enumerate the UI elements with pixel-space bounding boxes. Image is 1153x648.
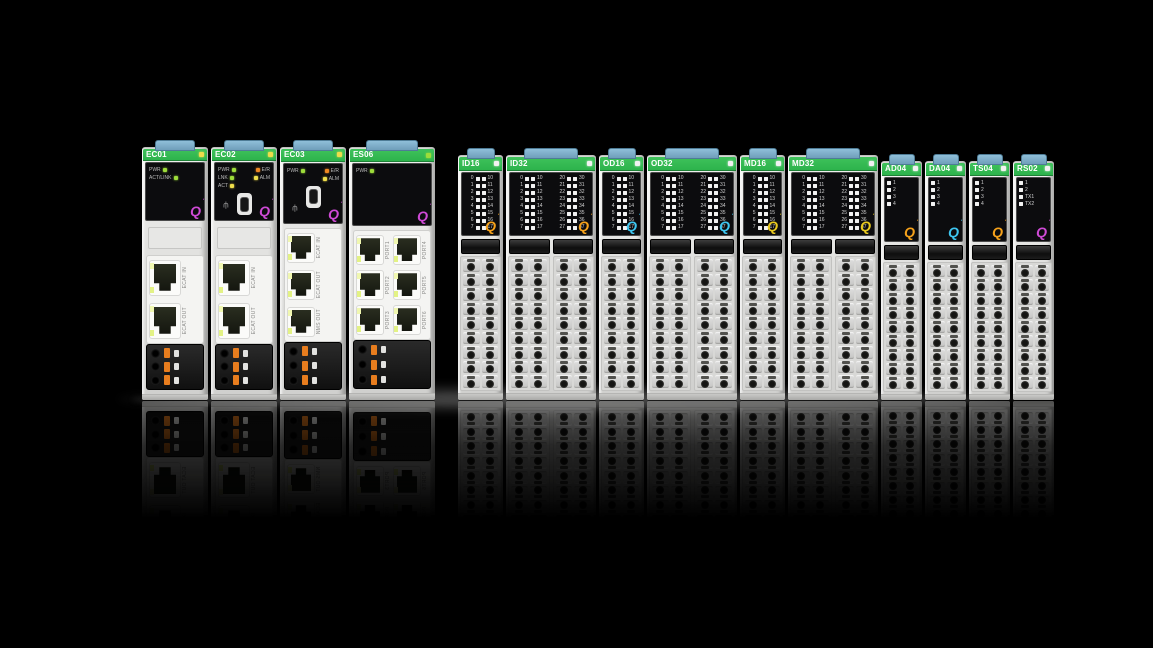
- terminal-wire-hole: [486, 428, 494, 436]
- terminal-section: [790, 410, 876, 545]
- channel-number: 1: [798, 183, 805, 188]
- channel-led: [887, 188, 891, 192]
- power-connector-row: [151, 429, 199, 440]
- status-led: [869, 161, 874, 166]
- terminal-release-slot: [675, 422, 683, 425]
- push-in-terminal: [991, 307, 1006, 319]
- push-in-terminal: [886, 496, 901, 508]
- terminal-release-slot: [467, 259, 475, 262]
- terminal-wire-hole: [467, 380, 475, 388]
- power-test-point: [174, 377, 179, 384]
- terminal-wire-hole: [994, 367, 1002, 375]
- module-base: [925, 394, 966, 400]
- power-release-lever: [164, 348, 170, 358]
- terminal-release-slot: [627, 303, 635, 306]
- terminal-release-slot: [515, 332, 523, 335]
- terminal-section: [883, 262, 920, 392]
- push-in-terminal: [482, 259, 499, 272]
- link-led: [288, 310, 292, 316]
- push-in-terminal: [856, 471, 873, 484]
- terminal-release-slot: [486, 437, 494, 440]
- terminal-wire-hole: [933, 440, 941, 448]
- channel-row: 2333: [836, 196, 872, 203]
- ejector-latch-row: [791, 239, 875, 254]
- terminal-wire-hole: [816, 336, 824, 344]
- module-ec01: EC01PWRACT/LINKQʹʹECAT INECAT OUT: [142, 147, 208, 400]
- terminal-wire-hole: [579, 457, 587, 465]
- terminal-release-slot: [933, 307, 941, 310]
- ethernet-port-row: ECAT IN: [218, 260, 270, 296]
- terminal-release-slot: [906, 293, 914, 296]
- terminal-wire-hole: [608, 292, 616, 300]
- rj45-jack: [291, 273, 311, 296]
- channel-number: 2: [798, 190, 805, 195]
- channel-number: 34: [579, 204, 586, 209]
- push-in-terminal: [671, 471, 688, 484]
- link-led: [150, 263, 154, 269]
- terminal-release-slot: [608, 422, 616, 425]
- terminal-wire-hole: [768, 307, 776, 315]
- terminal-release-slot: [579, 303, 587, 306]
- channel-led: [567, 184, 571, 188]
- push-in-terminal: [974, 468, 989, 480]
- channel-led: [623, 205, 627, 209]
- port-label: PORT6: [423, 311, 428, 329]
- push-in-terminal: [604, 471, 621, 484]
- channel-led-panel: 010111212313414515616717Qʹʹ: [743, 172, 782, 236]
- terminal-wire-hole: [1038, 468, 1046, 476]
- terminal-release-slot: [768, 451, 776, 454]
- channel-row: 515: [794, 210, 830, 217]
- port-label: ECAT OUT: [317, 503, 322, 530]
- terminal-wire-hole: [861, 263, 869, 271]
- channel-row: 111: [512, 182, 548, 189]
- channel-number: 30: [720, 176, 727, 181]
- push-in-terminal: [1018, 335, 1033, 347]
- channel-led: [758, 191, 762, 195]
- ethernet-port-row: ECAT OUT: [287, 270, 339, 300]
- terminal-release-slot: [579, 481, 587, 484]
- terminal-release-slot: [675, 451, 683, 454]
- channel-row: 2131: [554, 182, 590, 189]
- terminal-wire-hole: [608, 351, 616, 359]
- rj45-jack: [397, 308, 417, 331]
- channel-row: 313: [605, 196, 638, 203]
- channel-number: 7: [516, 225, 523, 230]
- led-label: ACT: [218, 182, 228, 190]
- terminal-wire-hole: [515, 336, 523, 344]
- push-in-terminal: [764, 274, 781, 287]
- terminal-wire-hole: [579, 428, 587, 436]
- terminal-wire-hole: [768, 278, 776, 286]
- terminal-release-slot: [486, 274, 494, 277]
- port-label: NMS OUT: [317, 309, 322, 334]
- terminal-wire-hole: [675, 321, 683, 329]
- push-in-terminal: [623, 428, 640, 441]
- ejector-latch: [650, 239, 691, 254]
- terminal-release-slot: [889, 533, 897, 536]
- terminal-wire-hole: [627, 428, 635, 436]
- link-led: [150, 489, 154, 495]
- status-led: [163, 168, 167, 172]
- ethernet-port-row: PORT1: [356, 536, 391, 551]
- terminal-release-slot: [579, 466, 587, 469]
- terminal-release-slot: [842, 451, 850, 454]
- terminal-wire-hole: [608, 278, 616, 286]
- ethernet-port-group: ECAT INECAT OUT: [146, 255, 204, 344]
- push-in-terminal: [623, 442, 640, 455]
- push-in-terminal: [886, 377, 901, 389]
- terminal-release-slot: [994, 377, 1002, 380]
- terminal-wire-hole: [579, 530, 587, 538]
- push-in-terminal: [623, 317, 640, 330]
- terminal-release-slot: [768, 303, 776, 306]
- terminal-wire-hole: [906, 325, 914, 333]
- terminal-wire-hole: [534, 380, 542, 388]
- activity-led: [150, 508, 154, 514]
- push-in-terminal: [463, 529, 480, 542]
- terminal-wire-hole: [627, 442, 635, 450]
- ethernet-port-row: PORT2: [356, 270, 391, 300]
- channel-led: [525, 177, 529, 181]
- terminal-wire-hole: [486, 501, 494, 509]
- rj45-port: [356, 305, 384, 335]
- push-in-terminal: [1018, 426, 1033, 438]
- channel-number: 0: [798, 176, 805, 181]
- power-release-lever: [302, 430, 308, 440]
- link-led: [394, 522, 398, 528]
- channel-row: 111: [464, 182, 497, 189]
- terminal-release-slot: [1021, 491, 1029, 494]
- ejector-latch: [835, 547, 876, 551]
- channel-led: [573, 191, 577, 195]
- module-base: [969, 401, 1010, 407]
- push-in-terminal: [482, 486, 499, 499]
- push-in-terminal: [991, 524, 1006, 536]
- terminal-release-slot: [933, 321, 941, 324]
- ejector-latch: [928, 245, 963, 260]
- channel-number: 6: [798, 218, 805, 223]
- terminal-release-slot: [1038, 477, 1046, 480]
- terminal-release-slot: [486, 539, 494, 542]
- push-in-terminal: [556, 288, 573, 301]
- terminal-wire-hole: [906, 496, 914, 504]
- terminal-release-slot: [906, 421, 914, 424]
- push-in-terminal: [604, 288, 621, 301]
- terminal-release-slot: [515, 466, 523, 469]
- status-led: [232, 168, 236, 172]
- push-in-terminal: [991, 335, 1006, 347]
- push-in-terminal: [463, 361, 480, 374]
- rj45-jack: [291, 505, 311, 528]
- push-in-terminal: [511, 274, 528, 287]
- channel-led-group: 010111212313414515616717: [512, 175, 548, 235]
- push-in-terminal: [604, 457, 621, 470]
- terminal-wire-hole: [797, 457, 805, 465]
- terminal-wire-hole: [467, 515, 475, 523]
- push-in-terminal: [697, 442, 714, 455]
- channel-row: 616: [512, 217, 548, 224]
- channel-led: [666, 177, 670, 181]
- power-wire-hole: [151, 416, 160, 425]
- terminal-wire-hole: [950, 339, 958, 347]
- channel-row: 2434: [695, 203, 731, 210]
- channel-led: [531, 191, 535, 195]
- terminal-release-slot: [861, 376, 869, 379]
- push-in-terminal: [1035, 321, 1050, 333]
- terminal-wire-hole: [861, 442, 869, 450]
- push-in-terminal: [793, 413, 810, 426]
- terminal-wire-hole: [515, 292, 523, 300]
- push-in-terminal: [1035, 377, 1050, 389]
- terminal-wire-hole: [977, 412, 985, 420]
- terminal-wire-hole: [467, 457, 475, 465]
- rj45-jack: [223, 307, 245, 334]
- push-in-terminal: [838, 361, 855, 374]
- terminal-wire-hole: [950, 381, 958, 389]
- module-base: [881, 394, 922, 400]
- terminal-release-slot: [486, 303, 494, 306]
- channel-row: 010: [464, 175, 497, 182]
- terminal-release-slot: [950, 519, 958, 522]
- terminal-block: [1015, 409, 1052, 539]
- push-in-terminal: [530, 375, 547, 388]
- terminal-release-slot: [534, 303, 542, 306]
- push-in-terminal: [764, 361, 781, 374]
- channel-label: 1: [1025, 181, 1028, 186]
- channel-row: 111: [746, 182, 779, 189]
- q-logo: Q: [417, 210, 428, 222]
- terminal-release-slot: [579, 274, 587, 277]
- terminal-release-slot: [889, 307, 897, 310]
- push-in-terminal: [652, 274, 669, 287]
- terminal-release-slot: [720, 376, 728, 379]
- terminal-wire-hole: [977, 297, 985, 305]
- push-in-terminal: [556, 361, 573, 374]
- terminal-wire-hole: [656, 413, 664, 421]
- channel-number: 34: [861, 204, 868, 209]
- terminal-wire-hole: [675, 307, 683, 315]
- terminal-block: [927, 409, 964, 539]
- terminal-wire-hole: [579, 442, 587, 450]
- terminal-wire-hole: [675, 457, 683, 465]
- push-in-terminal: [511, 486, 528, 499]
- module-da04: DA041234Qʹʹ: [925, 401, 966, 551]
- terminal-release-slot: [977, 321, 985, 324]
- push-in-terminal: [652, 515, 669, 528]
- channel-led: [617, 205, 621, 209]
- channel-led: [758, 226, 762, 230]
- led-with-label: LNK: [218, 174, 234, 182]
- push-in-terminal: [530, 428, 547, 441]
- terminal-wire-hole: [1021, 454, 1029, 462]
- rj45-port: [287, 464, 315, 494]
- channel-row: 414: [746, 203, 779, 210]
- channel-number: 2: [608, 190, 615, 195]
- push-in-terminal: [530, 259, 547, 272]
- channel-led: [764, 177, 768, 181]
- terminal-wire-hole: [933, 412, 941, 420]
- terminal-wire-hole: [656, 278, 664, 286]
- push-in-terminal: [903, 468, 918, 480]
- terminal-wire-hole: [797, 321, 805, 329]
- push-in-terminal: [974, 412, 989, 424]
- terminal-wire-hole: [816, 457, 824, 465]
- terminal-wire-hole: [994, 524, 1002, 532]
- module-id16: ID16010111212313414515616717Qʹʹ: [458, 401, 503, 551]
- power-test-point: [174, 350, 179, 357]
- terminal-wire-hole: [797, 472, 805, 480]
- module-od32: OD32010111212313414515616717203021312232…: [647, 401, 737, 551]
- link-led: [288, 236, 292, 242]
- terminal-release-slot: [627, 524, 635, 527]
- push-in-terminal: [511, 457, 528, 470]
- channel-led: [758, 205, 762, 209]
- push-in-terminal: [764, 259, 781, 272]
- terminal-wire-hole: [656, 428, 664, 436]
- push-in-terminal: [793, 346, 810, 359]
- terminal-wire-hole: [889, 482, 897, 490]
- terminal-release-slot: [534, 422, 542, 425]
- terminal-wire-hole: [486, 263, 494, 271]
- channel-number: 1: [657, 183, 664, 188]
- push-in-terminal: [745, 288, 762, 301]
- channel-number: 7: [608, 225, 615, 230]
- push-in-terminal: [671, 486, 688, 499]
- ejector-latch: [602, 239, 641, 254]
- terminal-release-slot: [515, 422, 523, 425]
- channel-label: 3: [981, 195, 984, 200]
- channel-number: 34: [720, 204, 727, 209]
- channel-led: [714, 177, 718, 181]
- push-in-terminal: [623, 515, 640, 528]
- terminal-wire-hole: [749, 457, 757, 465]
- terminal-wire-hole: [906, 482, 914, 490]
- terminal-wire-hole: [656, 307, 664, 315]
- power-connector-row: [289, 346, 337, 357]
- push-in-terminal: [903, 426, 918, 438]
- terminal-wire-hole: [1021, 297, 1029, 305]
- channel-led: [476, 212, 480, 216]
- module-ts04: TS041234Qʹʹ: [969, 161, 1010, 400]
- module-label-strip: OD16: [600, 157, 643, 171]
- terminal-release-slot: [627, 332, 635, 335]
- channel-row: 010: [512, 175, 548, 182]
- push-in-terminal: [463, 346, 480, 359]
- push-in-terminal: [856, 317, 873, 330]
- terminal-release-slot: [797, 288, 805, 291]
- channel-row: 2232: [695, 189, 731, 196]
- channel-row: 414: [605, 203, 638, 210]
- push-in-terminal: [856, 346, 873, 359]
- channel-led: [476, 226, 480, 230]
- terminal-wire-hole: [675, 515, 683, 523]
- terminal-release-slot: [560, 303, 568, 306]
- terminal-wire-hole: [627, 263, 635, 271]
- channel-number: 15: [537, 211, 544, 216]
- terminal-release-slot: [701, 437, 709, 440]
- push-in-terminal: [715, 375, 732, 388]
- push-in-terminal: [511, 529, 528, 542]
- terminal-wire-hole: [816, 351, 824, 359]
- terminal-release-slot: [560, 274, 568, 277]
- terminal-wire-hole: [627, 501, 635, 509]
- rj45-port: [356, 466, 384, 496]
- terminal-release-slot: [720, 481, 728, 484]
- channel-number: 1: [516, 183, 523, 188]
- terminal-wire-hole: [675, 278, 683, 286]
- terminal-wire-hole: [906, 440, 914, 448]
- channel-number: 14: [678, 204, 685, 209]
- terminal-wire-hole: [749, 472, 757, 480]
- push-in-terminal: [463, 274, 480, 287]
- channel-row: 2232: [836, 189, 872, 196]
- terminal-wire-hole: [977, 496, 985, 504]
- push-in-terminal: [556, 346, 573, 359]
- power-connector-row: [220, 375, 268, 386]
- terminal-release-slot: [977, 335, 985, 338]
- channel-led: [567, 198, 571, 202]
- ethernet-port-group: ECAT INECAT OUTNMS OUT: [284, 459, 342, 551]
- push-in-terminal: [838, 375, 855, 388]
- terminal-wire-hole: [534, 413, 542, 421]
- channel-number: 3: [798, 197, 805, 202]
- channel-row: 515: [653, 210, 689, 217]
- module-label-strip: OD32: [648, 157, 736, 171]
- push-in-terminal: [482, 288, 499, 301]
- terminal-wire-hole: [627, 515, 635, 523]
- power-connector-row: [151, 415, 199, 426]
- terminal-wire-hole: [720, 486, 728, 494]
- terminal-wire-hole: [608, 486, 616, 494]
- terminal-release-slot: [950, 293, 958, 296]
- terminal-wire-hole: [842, 307, 850, 315]
- terminal-release-slot: [816, 361, 824, 364]
- channel-led: [666, 205, 670, 209]
- power-release-lever: [371, 416, 377, 426]
- channel-led: [573, 184, 577, 188]
- terminal-wire-hole: [701, 486, 709, 494]
- push-in-terminal: [745, 529, 762, 542]
- terminal-release-slot: [842, 317, 850, 320]
- channel-led: [849, 205, 853, 209]
- terminal-release-slot: [467, 347, 475, 350]
- terminal-wire-hole: [579, 380, 587, 388]
- q-logo: Q: [992, 226, 1003, 238]
- terminal-release-slot: [486, 259, 494, 262]
- terminal-release-slot: [701, 347, 709, 350]
- terminal-release-slot: [950, 491, 958, 494]
- terminal-wire-hole: [816, 278, 824, 286]
- push-in-terminal: [482, 442, 499, 455]
- push-in-terminal: [1018, 265, 1033, 277]
- terminal-wire-hole: [579, 263, 587, 271]
- power-wire-hole: [358, 432, 367, 441]
- terminal-release-slot: [889, 321, 897, 324]
- activity-led: [394, 469, 398, 475]
- ethernet-port-row: PORT3: [356, 466, 391, 496]
- led-label: PWR: [287, 167, 299, 175]
- terminal-release-slot: [768, 274, 776, 277]
- channel-row: 111: [653, 182, 689, 189]
- terminal-wire-hole: [906, 426, 914, 434]
- power-test-point: [174, 417, 179, 424]
- terminal-release-slot: [861, 524, 869, 527]
- channel-led: [855, 191, 859, 195]
- terminal-wire-hole: [534, 263, 542, 271]
- terminal-release-slot: [1038, 491, 1046, 494]
- terminal-release-slot: [933, 335, 941, 338]
